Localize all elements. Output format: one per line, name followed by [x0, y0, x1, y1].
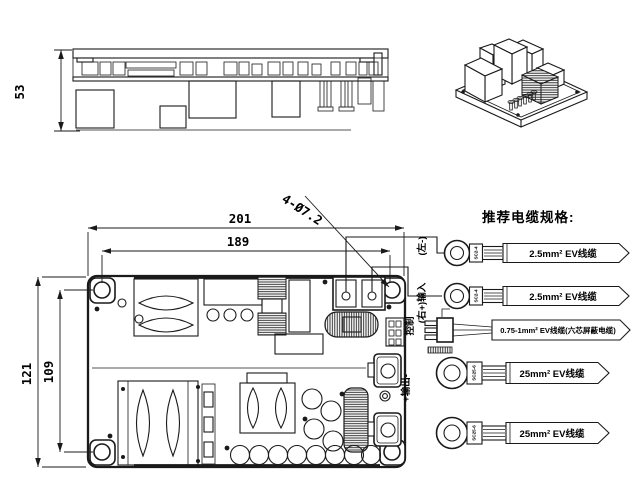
dim-board-height-label: 121 [19, 363, 34, 386]
cable-label: 25mm² EV线缆 [520, 368, 585, 380]
port-label-input-pos: (右+)输入 [416, 282, 428, 323]
dim-side-height-label: 53 [12, 84, 27, 99]
dim-hole-pitch-y-label: 109 [41, 361, 56, 384]
hole-callout: 4-Ø7.2 [279, 191, 389, 287]
cable-spec-panel: 推荐电缆规格: (左-) (右+)输入 控制 +输出- SC2-4 2.5mm²… [400, 209, 630, 449]
output-terminal-2 [368, 413, 401, 446]
control-connector [386, 318, 404, 346]
side-view: 53 [12, 49, 388, 131]
lug-mark: SC25-6 [472, 425, 477, 441]
output-terminal-1 [368, 354, 401, 387]
side-view-components-bottom [76, 78, 384, 130]
lug-mark: SC2-4 [474, 246, 479, 259]
drawing-canvas: 53 [0, 0, 632, 482]
cable-row-output-neg: SC25-6 25mm² EV线缆 [437, 418, 610, 449]
cable-row-input-pos: SC2-4 2.5mm² EV线缆 [445, 284, 630, 309]
lug-mark: SC25-6 [472, 365, 477, 381]
cable-row-output-pos: SC25-6 25mm² EV线缆 [437, 358, 610, 389]
cable-row-input-neg: SC2-4 2.5mm² EV线缆 [445, 241, 630, 266]
port-label-input-neg: (左-) [416, 237, 428, 256]
cable-row-control: 0.75-1mm² EV线缆(六芯屏蔽电缆) [425, 309, 630, 353]
technical-drawing: 53 [0, 0, 632, 482]
side-view-components-top [82, 62, 378, 76]
port-label-control: 控制 [404, 316, 416, 336]
hole-callout-label: 4-Ø7.2 [279, 191, 325, 228]
board-components-bottom [118, 354, 401, 465]
board-components-top [118, 277, 404, 354]
top-view: 201 189 121 109 [19, 191, 445, 467]
dimension-hole-pitch-y: 109 [41, 290, 93, 452]
cable-label: 25mm² EV线缆 [520, 428, 585, 440]
dim-board-width-label: 201 [229, 211, 252, 226]
port-label-output: +输出- [400, 374, 412, 402]
lug-mark: SC2-4 [474, 289, 479, 302]
isometric-view [456, 39, 587, 127]
cable-label: 0.75-1mm² EV线缆(六芯屏蔽电缆) [500, 325, 616, 335]
dim-hole-pitch-x-label: 189 [227, 234, 250, 249]
dimension-side-height: 53 [12, 50, 80, 131]
cable-label: 2.5mm² EV线缆 [529, 291, 597, 303]
cable-spec-title: 推荐电缆规格: [482, 209, 575, 225]
cable-label: 2.5mm² EV线缆 [529, 248, 597, 260]
input-terminal-block [333, 277, 385, 310]
